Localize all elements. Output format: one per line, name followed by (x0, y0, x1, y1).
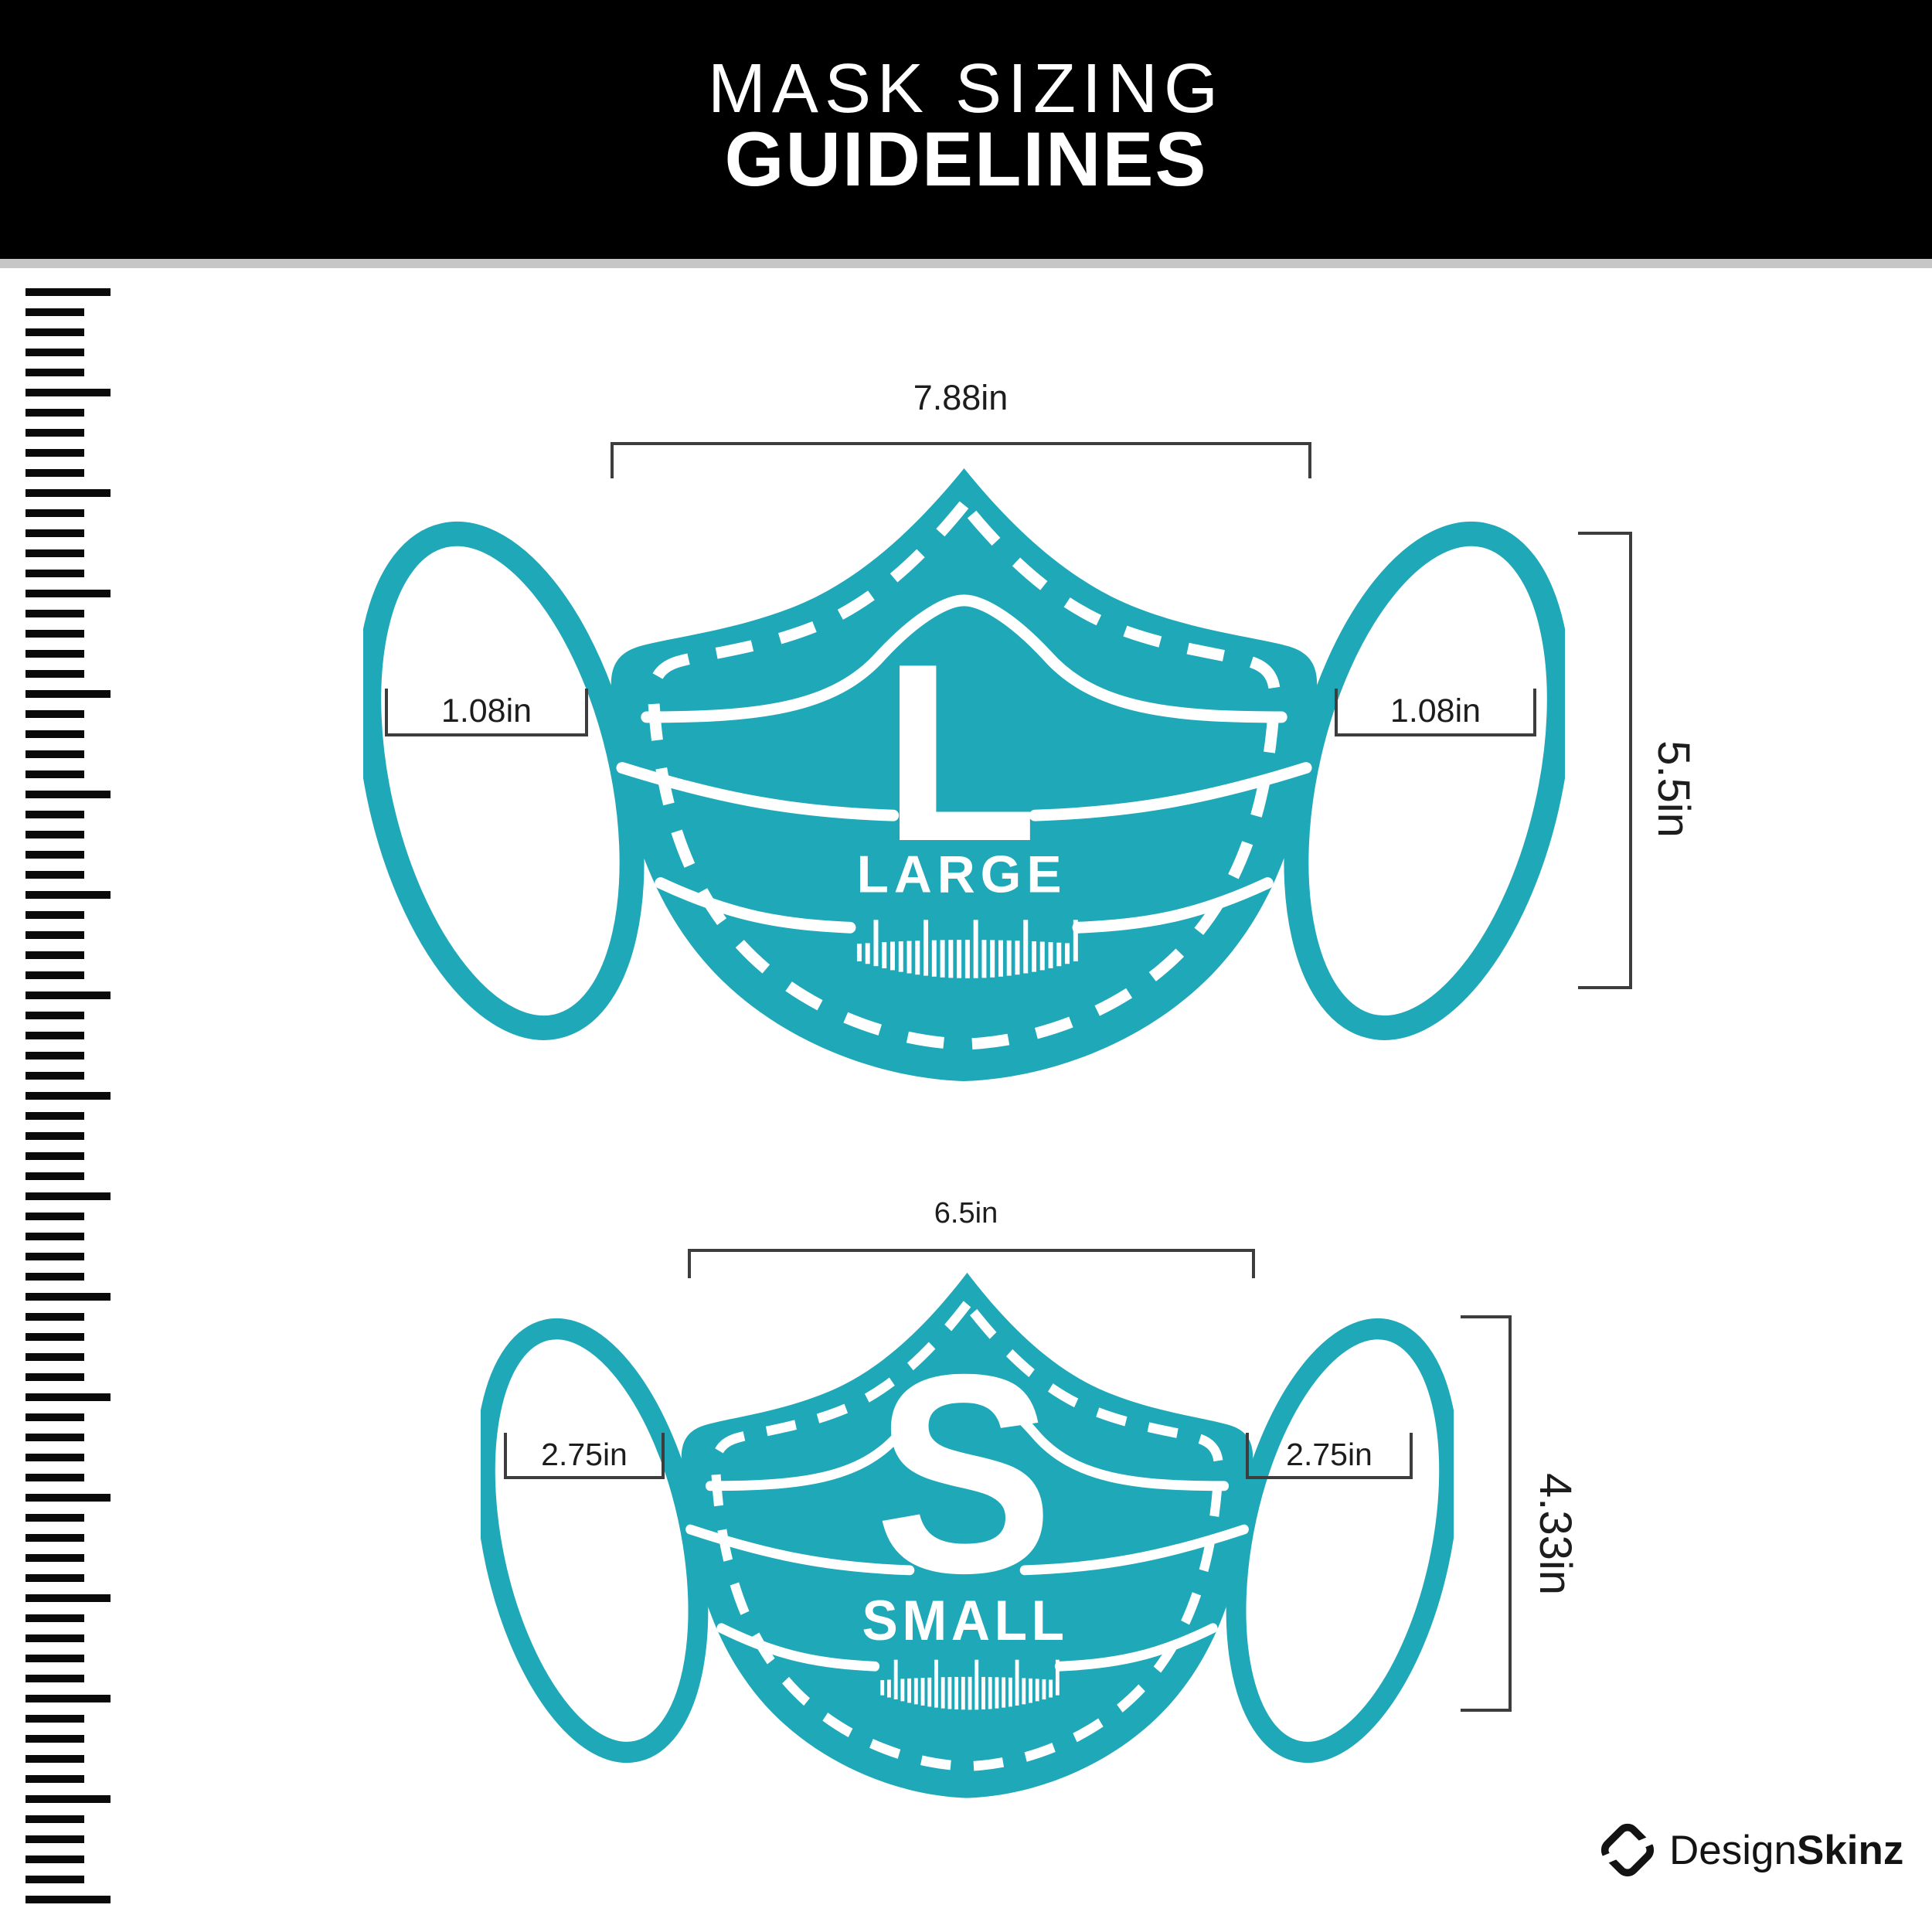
small-mask-left-ear-label: 2.75in (541, 1437, 628, 1473)
ruler-tick (26, 369, 84, 376)
brand-name-bold: Skinz (1797, 1828, 1903, 1873)
ruler-tick (26, 328, 84, 336)
ruler-tick (26, 409, 84, 417)
ruler-tick (26, 1474, 84, 1481)
page-title-line1: MASK SIZING (0, 54, 1932, 124)
ruler-tick (26, 1052, 84, 1060)
large-mask-left-ear-label: 1.08in (441, 692, 532, 730)
ruler-tick (26, 1313, 84, 1321)
ruler-tick (26, 1454, 84, 1461)
header-banner: MASK SIZING GUIDELINES (0, 0, 1932, 259)
ruler-tick (26, 1333, 84, 1341)
ruler-tick (26, 489, 111, 497)
small-mask-height-bracket (1461, 1315, 1512, 1712)
ruler-tick (26, 911, 84, 919)
ruler-tick (26, 529, 84, 537)
ruler-tick (26, 1152, 84, 1160)
header-divider (0, 259, 1932, 268)
ruler-tick (26, 1373, 84, 1381)
small-mask-word: SMALL (862, 1589, 1068, 1652)
ruler-tick (26, 1715, 84, 1723)
ruler-tick (26, 891, 111, 899)
ruler-tick (26, 971, 84, 979)
ruler-tick (26, 570, 84, 577)
ruler-tick (26, 509, 84, 517)
ruler-tick (26, 1855, 84, 1863)
ruler-tick (26, 1273, 84, 1281)
ruler-tick (26, 1876, 84, 1883)
designskinz-s-icon (1597, 1818, 1658, 1883)
ruler-tick (26, 1896, 111, 1903)
ruler-tick (26, 1413, 84, 1421)
ruler-tick (26, 1514, 84, 1522)
ruler-tick (26, 1213, 84, 1220)
ruler-tick (26, 1172, 84, 1180)
large-mask-illustration: L LARGE (363, 462, 1565, 1084)
ruler-tick (26, 1112, 84, 1120)
large-mask-height-bracket (1578, 532, 1632, 989)
ruler-tick (26, 1634, 84, 1642)
ruler-tick (26, 831, 84, 838)
ruler-tick (26, 1614, 84, 1622)
small-mask-right-ear-label: 2.75in (1286, 1437, 1372, 1473)
ruler-tick (26, 1594, 111, 1602)
ruler-tick (26, 750, 84, 758)
ruler-tick (26, 992, 111, 999)
ruler-tick (26, 770, 84, 778)
ruler-tick (26, 710, 84, 718)
ruler-tick (26, 1534, 84, 1542)
ruler-tick (26, 1012, 84, 1019)
large-mask-height-label: 5.5in (1648, 696, 1698, 882)
ruler-tick (26, 670, 84, 678)
ruler-tick (26, 1494, 111, 1502)
ruler-tick (26, 951, 84, 959)
ruler-tick (26, 1072, 84, 1080)
ruler-tick (26, 1695, 111, 1702)
ruler-tick (26, 1675, 84, 1682)
vertical-ruler-icon (26, 288, 111, 1905)
ruler-tick (26, 1574, 84, 1582)
ruler-tick (26, 1393, 111, 1401)
ruler-tick (26, 851, 84, 859)
large-mask-word: LARGE (856, 846, 1066, 904)
brand-name-regular: Design (1669, 1828, 1797, 1873)
brand-logo: DesignSkinz (1597, 1818, 1903, 1883)
small-mask-right-ear-bracket: 2.75in (1246, 1433, 1413, 1479)
small-mask-height-label: 4.33in (1530, 1441, 1580, 1627)
ruler-tick (26, 389, 111, 396)
ruler-tick (26, 469, 84, 477)
ruler-tick (26, 730, 84, 738)
ruler-tick (26, 1434, 84, 1441)
ruler-tick (26, 1192, 111, 1200)
ruler-tick (26, 931, 84, 939)
ruler-tick (26, 1735, 84, 1743)
ruler-tick (26, 308, 84, 316)
ruler-tick (26, 690, 111, 698)
large-mask-width-label: 7.88in (806, 377, 1115, 419)
ruler-tick (26, 630, 84, 638)
ruler-tick (26, 1092, 111, 1100)
ruler-tick (26, 1835, 84, 1843)
ruler-tick (26, 650, 84, 658)
large-mask-left-ear-bracket: 1.08in (385, 689, 588, 736)
ruler-tick (26, 449, 84, 457)
small-mask-letter: S (875, 1315, 1053, 1632)
ruler-tick (26, 1554, 84, 1562)
ruler-tick (26, 1132, 84, 1140)
ruler-tick (26, 1253, 84, 1260)
ruler-tick (26, 349, 84, 356)
brand-logo-text: DesignSkinz (1669, 1827, 1903, 1874)
small-mask-width-label: 6.5in (811, 1196, 1121, 1232)
ruler-tick (26, 1353, 84, 1361)
ruler-tick (26, 1293, 111, 1301)
large-mask-right-ear-label: 1.08in (1390, 692, 1481, 730)
small-mask-illustration: S SMALL (481, 1267, 1454, 1801)
ruler-tick (26, 610, 84, 617)
ruler-tick (26, 1755, 84, 1763)
ruler-tick (26, 1233, 84, 1240)
ruler-tick (26, 288, 111, 296)
ruler-tick (26, 1795, 111, 1803)
ruler-tick (26, 429, 84, 437)
ruler-tick (26, 1815, 84, 1823)
small-mask-left-ear-bracket: 2.75in (504, 1433, 665, 1479)
ruler-tick (26, 1032, 84, 1039)
ruler-tick (26, 811, 84, 818)
mask-sizing-infographic: MASK SIZING GUIDELINES 7.88in (0, 0, 1932, 1932)
ruler-tick (26, 590, 111, 597)
ruler-tick (26, 549, 84, 557)
ruler-tick (26, 1775, 84, 1783)
ruler-tick (26, 791, 111, 798)
ruler-tick (26, 871, 84, 879)
page-title-line2: GUIDELINES (0, 121, 1932, 197)
ruler-tick (26, 1655, 84, 1662)
large-mask-right-ear-bracket: 1.08in (1335, 689, 1536, 736)
